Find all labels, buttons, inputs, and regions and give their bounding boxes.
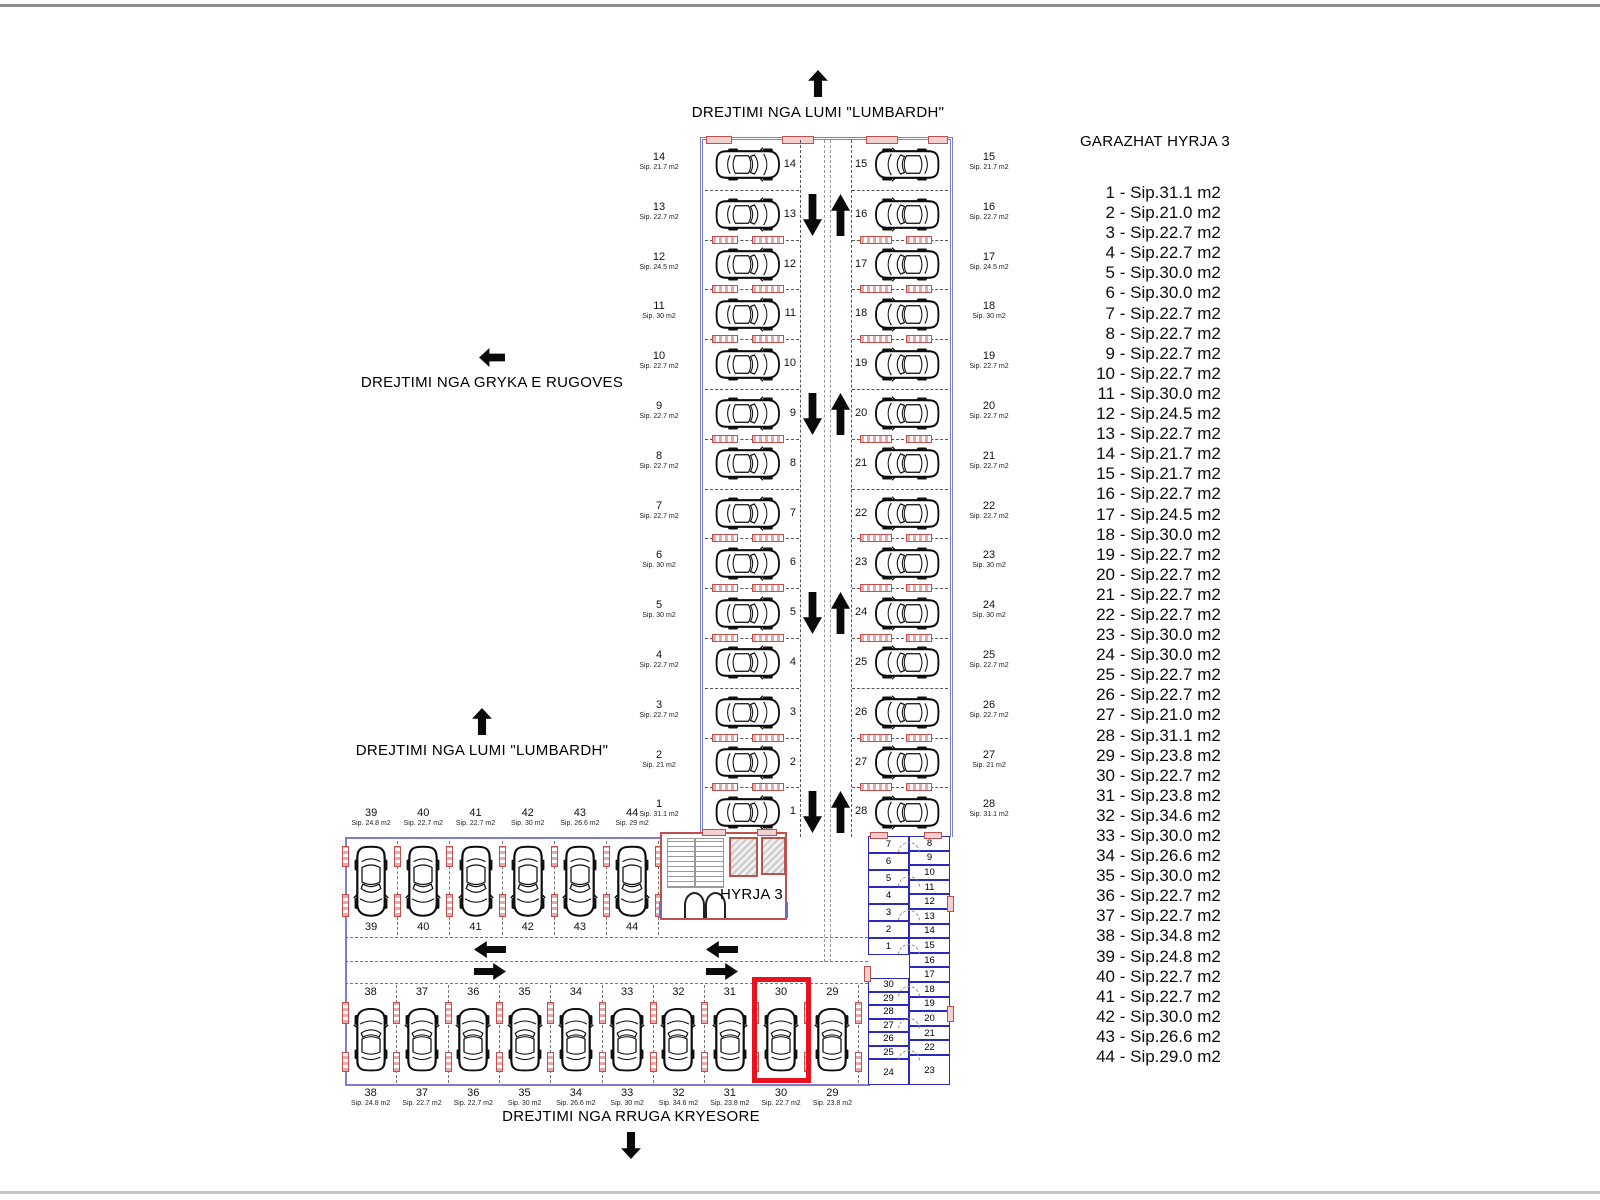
stall-number-23: 23	[855, 556, 877, 570]
legend-item-area: - Sip.34.8 m2	[1115, 926, 1221, 946]
stall-number-14: 14	[774, 158, 796, 172]
legend-item-number: 17	[1083, 505, 1115, 525]
garage-door-marker	[599, 1002, 606, 1024]
legend-item-number: 43	[1083, 1027, 1115, 1047]
stall-number-42: 42	[513, 921, 543, 935]
garage-door-marker	[860, 534, 892, 542]
legend-item-area: - Sip.30.0 m2	[1115, 625, 1221, 645]
car-icon	[353, 1006, 389, 1072]
stall-label-13: 13Sip. 22.7 m2	[619, 202, 699, 222]
legend-item-36: 36 - Sip.22.7 m2	[1083, 886, 1221, 906]
garage-door-marker	[445, 1002, 452, 1024]
garage-door-marker	[342, 1002, 349, 1024]
legend-item-number: 16	[1083, 484, 1115, 504]
legend-item-number: 34	[1083, 846, 1115, 866]
lane-arrow-down-icon	[803, 194, 822, 236]
stall-divider	[852, 688, 948, 689]
car-icon	[715, 147, 782, 182]
stall-label-29-number: 29	[801, 1088, 863, 1099]
stall-label-3-area: Sip. 22.7 m2	[619, 711, 699, 720]
garage-door-marker	[712, 335, 738, 343]
legend-item-number: 3	[1083, 223, 1115, 243]
stall-label-14-number: 14	[619, 152, 699, 163]
legend-item-15: 15 - Sip.21.7 m2	[1083, 464, 1221, 484]
car-icon	[873, 446, 940, 481]
car-icon	[455, 1006, 491, 1072]
stall-number-6: 6	[774, 556, 796, 570]
stall-label-5-number: 5	[619, 600, 699, 611]
stall-number-10: 10	[774, 357, 796, 371]
stall-label-4: 4Sip. 22.7 m2	[619, 650, 699, 670]
stall-number-16: 16	[855, 208, 877, 222]
legend-item-area: - Sip.21.7 m2	[1115, 464, 1221, 484]
legend-item-area: - Sip.22.7 m2	[1115, 545, 1221, 565]
legend-item-number: 9	[1083, 344, 1115, 364]
garage-door-marker	[603, 894, 610, 917]
stall-label-44-number: 44	[601, 808, 663, 819]
legend-item-number: 21	[1083, 585, 1115, 605]
stall-label-28-area: Sip. 31.1 m2	[949, 810, 1029, 819]
garage-door-marker	[906, 584, 932, 592]
stall-divider	[705, 190, 799, 191]
car-icon	[507, 1006, 543, 1072]
legend-item-number: 39	[1083, 947, 1115, 967]
stall-number-32: 32	[663, 986, 693, 1000]
stall-number-17: 17	[855, 258, 877, 272]
legend-item-1: 1 - Sip.31.1 m2	[1083, 183, 1221, 203]
stall-label-12-area: Sip. 24.5 m2	[619, 263, 699, 272]
stall-label-22-number: 22	[949, 501, 1029, 512]
legend-item-number: 1	[1083, 183, 1115, 203]
legend-item-area: - Sip.24.8 m2	[1115, 947, 1221, 967]
legend-item-31: 31 - Sip.23.8 m2	[1083, 786, 1221, 806]
car-icon	[715, 446, 782, 481]
legend-item-area: - Sip.22.7 m2	[1115, 585, 1221, 605]
legend-items: 1 - Sip.31.1 m22 - Sip.21.0 m23 - Sip.22…	[1083, 183, 1221, 1067]
legend-item-44: 44 - Sip.29.0 m2	[1083, 1047, 1221, 1067]
stall-label-11-area: Sip. 30 m2	[619, 312, 699, 321]
legend-item-number: 32	[1083, 806, 1115, 826]
garage-door-marker	[603, 846, 610, 867]
car-icon	[353, 845, 389, 919]
garage-door-marker	[394, 894, 401, 917]
garage-door-marker	[712, 584, 738, 592]
direction-top-label: DREJTIMI NGA LUMI "LUMBARDH"	[692, 104, 944, 121]
lane-line	[345, 961, 868, 962]
legend-item-area: - Sip.23.8 m2	[1115, 746, 1221, 766]
stall-label-23-number: 23	[949, 550, 1029, 561]
legend-item-area: - Sip.22.7 m2	[1115, 364, 1221, 384]
stall-label-6: 6Sip. 30 m2	[619, 550, 699, 570]
legend-item-16: 16 - Sip.22.7 m2	[1083, 484, 1221, 504]
car-icon	[873, 147, 940, 182]
legend-item-14: 14 - Sip.21.7 m2	[1083, 444, 1221, 464]
car-icon	[614, 845, 650, 919]
stall-label-25-number: 25	[949, 650, 1029, 661]
garage-door-marker	[860, 335, 892, 343]
garage-door-marker	[446, 894, 453, 917]
stall-label-6-area: Sip. 30 m2	[619, 561, 699, 570]
stall-number-1: 1	[774, 805, 796, 819]
car-icon	[404, 1006, 440, 1072]
garage-door-marker	[752, 335, 784, 343]
stall-number-26: 26	[855, 706, 877, 720]
stall-label-17: 17Sip. 24.5 m2	[949, 252, 1029, 272]
legend-item-27: 27 - Sip.21.0 m2	[1083, 705, 1221, 725]
legend-item-25: 25 - Sip.22.7 m2	[1083, 665, 1221, 685]
entrance-label: HYRJA 3	[720, 886, 783, 903]
legend-item-area: - Sip.22.7 m2	[1115, 766, 1221, 786]
garage-door-marker	[906, 285, 932, 293]
legend-item-26: 26 - Sip.22.7 m2	[1083, 685, 1221, 705]
lane-arrow-right-icon	[706, 963, 738, 980]
car-icon	[715, 695, 782, 730]
legend-item-area: - Sip.22.7 m2	[1115, 344, 1221, 364]
legend-item-3: 3 - Sip.22.7 m2	[1083, 223, 1221, 243]
stall-number-22: 22	[855, 507, 877, 521]
stall-label-18: 18Sip. 30 m2	[949, 301, 1029, 321]
wall-door-segment	[864, 966, 871, 982]
legend-item-area: - Sip.31.1 m2	[1115, 726, 1221, 746]
legend-item-number: 26	[1083, 685, 1115, 705]
stall-number-40: 40	[408, 921, 438, 935]
stall-number-44: 44	[617, 921, 647, 935]
stall-number-8: 8	[774, 457, 796, 471]
stall-number-19: 19	[855, 357, 877, 371]
storage-grid: 7654321302928272625248910111213141516171…	[868, 836, 950, 1085]
legend-item-number: 22	[1083, 605, 1115, 625]
legend-item-number: 12	[1083, 404, 1115, 424]
garage-door-marker	[342, 1052, 349, 1072]
legend-item-number: 7	[1083, 304, 1115, 324]
lane-arrow-up-icon	[831, 592, 850, 634]
wall-door-segment	[870, 832, 888, 839]
elevator	[729, 837, 758, 877]
wall-accent	[659, 902, 662, 918]
legend-item-area: - Sip.21.7 m2	[1115, 444, 1221, 464]
stall-number-12: 12	[774, 258, 796, 272]
legend-item-18: 18 - Sip.30.0 m2	[1083, 525, 1221, 545]
garage-door-marker	[752, 534, 784, 542]
stall-label-8-number: 8	[619, 451, 699, 462]
stall-number-7: 7	[774, 507, 796, 521]
car-icon	[660, 1006, 696, 1072]
stall-number-38: 38	[356, 986, 386, 1000]
garage-door-marker	[906, 734, 932, 742]
car-icon	[715, 745, 782, 780]
stall-number-27: 27	[855, 756, 877, 770]
car-icon	[873, 247, 940, 282]
legend-item-area: - Sip.22.7 m2	[1115, 243, 1221, 263]
stall-label-12-number: 12	[619, 252, 699, 263]
legend-item-area: - Sip.21.0 m2	[1115, 203, 1221, 223]
stall-label-6-number: 6	[619, 550, 699, 561]
legend-item-9: 9 - Sip.22.7 m2	[1083, 344, 1221, 364]
lane-arrow-up-icon	[831, 194, 850, 236]
legend-item-area: - Sip.23.8 m2	[1115, 786, 1221, 806]
car-icon	[715, 645, 782, 680]
legend-title: GARAZHAT HYRJA 3	[1070, 133, 1240, 150]
stall-divider	[705, 389, 799, 390]
stall-label-44: 44Sip. 29 m2	[601, 808, 663, 828]
legend-item-39: 39 - Sip.24.8 m2	[1083, 947, 1221, 967]
legend-item-area: - Sip.24.5 m2	[1115, 404, 1221, 424]
stall-number-36: 36	[458, 986, 488, 1000]
car-icon	[873, 695, 940, 730]
storage-cell-28[interactable]: 28	[868, 1005, 909, 1019]
legend-item-42: 42 - Sip.30.0 m2	[1083, 1007, 1221, 1027]
stall-label-9-area: Sip. 22.7 m2	[619, 412, 699, 421]
stall-label-20: 20Sip. 22.7 m2	[949, 401, 1029, 421]
stall-label-22: 22Sip. 22.7 m2	[949, 501, 1029, 521]
legend-item-10: 10 - Sip.22.7 m2	[1083, 364, 1221, 384]
garage-door-marker	[342, 894, 349, 917]
stall-label-28-number: 28	[949, 799, 1029, 810]
stall-number-3: 3	[774, 706, 796, 720]
lane-center-line	[824, 140, 825, 962]
stall-label-8-area: Sip. 22.7 m2	[619, 462, 699, 471]
legend-item-number: 20	[1083, 565, 1115, 585]
garage-door-marker	[599, 1052, 606, 1072]
stall-label-28: 28Sip. 31.1 m2	[949, 799, 1029, 819]
arrow-down-icon	[620, 1132, 642, 1159]
garage-door-marker	[496, 1002, 503, 1024]
legend-item-24: 24 - Sip.30.0 m2	[1083, 645, 1221, 665]
lane-arrow-up-icon	[831, 791, 850, 833]
legend-item-number: 5	[1083, 263, 1115, 283]
legend-item-23: 23 - Sip.30.0 m2	[1083, 625, 1221, 645]
stall-label-25: 25Sip. 22.7 m2	[949, 650, 1029, 670]
stall-divider	[852, 489, 948, 490]
legend-item-area: - Sip.30.0 m2	[1115, 1007, 1221, 1027]
stall-label-21-area: Sip. 22.7 m2	[949, 462, 1029, 471]
legend-item-area: - Sip.29.0 m2	[1115, 1047, 1221, 1067]
wall-door-segment	[924, 832, 942, 839]
garage-door-marker	[547, 1002, 554, 1024]
stall-label-7-number: 7	[619, 501, 699, 512]
stall-number-9: 9	[774, 407, 796, 421]
stall-divider	[705, 688, 799, 689]
legend-item-number: 14	[1083, 444, 1115, 464]
legend-item-area: - Sip.22.7 m2	[1115, 424, 1221, 444]
stall-number-29: 29	[817, 986, 847, 1000]
stall-label-26-area: Sip. 22.7 m2	[949, 711, 1029, 720]
storage-cell-12[interactable]: 12	[909, 894, 950, 909]
garage-door-marker	[752, 734, 784, 742]
stall-number-33: 33	[612, 986, 642, 1000]
legend-item-number: 19	[1083, 545, 1115, 565]
car-icon	[609, 1006, 645, 1072]
legend-item-6: 6 - Sip.30.0 m2	[1083, 283, 1221, 303]
legend-item-number: 27	[1083, 705, 1115, 725]
legend-item-number: 42	[1083, 1007, 1115, 1027]
legend-item-number: 8	[1083, 324, 1115, 344]
stall-number-25: 25	[855, 656, 877, 670]
page-bottom-rule	[0, 1191, 1600, 1194]
legend-item-number: 25	[1083, 665, 1115, 685]
car-icon	[715, 396, 782, 431]
garage-door-marker	[752, 285, 784, 293]
garage-door-marker	[650, 1002, 657, 1024]
garage-door-marker	[906, 634, 932, 642]
stall-label-15-number: 15	[949, 152, 1029, 163]
stall-label-29: 29Sip. 23.8 m2	[801, 1088, 863, 1108]
stall-label-4-area: Sip. 22.7 m2	[619, 661, 699, 670]
legend-item-area: - Sip.22.7 m2	[1115, 987, 1221, 1007]
lane-arrow-down-icon	[803, 393, 822, 435]
legend-item-19: 19 - Sip.22.7 m2	[1083, 545, 1221, 565]
legend-item-number: 28	[1083, 726, 1115, 746]
legend-item-area: - Sip.30.0 m2	[1115, 263, 1221, 283]
stall-label-10-area: Sip. 22.7 m2	[619, 362, 699, 371]
legend-item-34: 34 - Sip.26.6 m2	[1083, 846, 1221, 866]
lane-arrow-up-icon	[831, 393, 850, 435]
legend-item-17: 17 - Sip.24.5 m2	[1083, 505, 1221, 525]
garage-door-marker	[752, 435, 784, 443]
stall-label-5: 5Sip. 30 m2	[619, 600, 699, 620]
car-icon	[873, 496, 940, 531]
legend-item-area: - Sip.34.6 m2	[1115, 806, 1221, 826]
stall-label-3: 3Sip. 22.7 m2	[619, 700, 699, 720]
stall-label-2-area: Sip. 21 m2	[619, 761, 699, 770]
stall-number-2: 2	[774, 756, 796, 770]
legend-item-number: 4	[1083, 243, 1115, 263]
legend-item-number: 36	[1083, 886, 1115, 906]
legend-item-area: - Sip.30.0 m2	[1115, 826, 1221, 846]
legend-item-area: - Sip.22.7 m2	[1115, 565, 1221, 585]
stall-number-21: 21	[855, 457, 877, 471]
legend-item-number: 13	[1083, 424, 1115, 444]
garage-door-marker	[906, 236, 932, 244]
garage-door-marker	[906, 335, 932, 343]
lane-arrow-down-icon	[803, 791, 822, 833]
garage-door-marker	[551, 846, 558, 867]
lane-edge-line	[800, 140, 801, 837]
stall-divider	[852, 190, 948, 191]
car-icon	[458, 845, 494, 919]
garage-door-marker	[906, 435, 932, 443]
legend-item-number: 30	[1083, 766, 1115, 786]
stall-label-2-number: 2	[619, 750, 699, 761]
legend-item-area: - Sip.21.0 m2	[1115, 705, 1221, 725]
stall-label-18-area: Sip. 30 m2	[949, 312, 1029, 321]
legend-item-43: 43 - Sip.26.6 m2	[1083, 1027, 1221, 1047]
stall-label-19-area: Sip. 22.7 m2	[949, 362, 1029, 371]
garage-door-marker	[551, 894, 558, 917]
stall-label-11-number: 11	[619, 301, 699, 312]
storage-cell-17[interactable]: 17	[909, 967, 950, 982]
legend-item-number: 2	[1083, 203, 1115, 223]
legend-item-area: - Sip.22.7 m2	[1115, 484, 1221, 504]
garage-door-marker	[394, 846, 401, 867]
stall-label-20-area: Sip. 22.7 m2	[949, 412, 1029, 421]
legend-item-11: 11 - Sip.30.0 m2	[1083, 384, 1221, 404]
legend-item-38: 38 - Sip.34.8 m2	[1083, 926, 1221, 946]
garage-door-marker	[860, 734, 892, 742]
stall-label-25-area: Sip. 22.7 m2	[949, 661, 1029, 670]
car-icon	[873, 197, 940, 232]
stall-number-24: 24	[855, 606, 877, 620]
arrow-left-icon	[478, 348, 506, 367]
entrance-door-arc	[684, 892, 705, 918]
legend-item-area: - Sip.26.6 m2	[1115, 1027, 1221, 1047]
garage-door-marker	[496, 1052, 503, 1072]
garage-door-marker	[860, 584, 892, 592]
stall-label-16-area: Sip. 22.7 m2	[949, 213, 1029, 222]
garage-door-marker	[393, 1002, 400, 1024]
stall-label-15-area: Sip. 21.7 m2	[949, 163, 1029, 172]
stall-label-17-area: Sip. 24.5 m2	[949, 263, 1029, 272]
stall-number-5: 5	[774, 606, 796, 620]
car-icon	[715, 197, 782, 232]
direction-top: DREJTIMI NGA LUMI "LUMBARDH"	[638, 70, 998, 121]
stall-label-24-number: 24	[949, 600, 1029, 611]
legend-item-22: 22 - Sip.22.7 m2	[1083, 605, 1221, 625]
direction-mid: DREJTIMI NGA LUMI "LUMBARDH"	[332, 708, 632, 759]
stall-label-16-number: 16	[949, 202, 1029, 213]
garage-door-marker	[445, 1052, 452, 1072]
stall-label-11: 11Sip. 30 m2	[619, 301, 699, 321]
stall-label-29-area: Sip. 23.8 m2	[801, 1099, 863, 1108]
garage-door-marker	[860, 285, 892, 293]
legend-item-area: - Sip.30.0 m2	[1115, 645, 1221, 665]
stall-label-2: 2Sip. 21 m2	[619, 750, 699, 770]
legend-item-number: 10	[1083, 364, 1115, 384]
wall-door-segment	[947, 1006, 954, 1022]
garage-door-marker	[701, 1002, 708, 1024]
legend-item-32: 32 - Sip.34.6 m2	[1083, 806, 1221, 826]
stall-label-24-area: Sip. 30 m2	[949, 611, 1029, 620]
stall-label-27-number: 27	[949, 750, 1029, 761]
garage-door-marker	[650, 1052, 657, 1072]
legend-item-5: 5 - Sip.30.0 m2	[1083, 263, 1221, 283]
stall-number-13: 13	[774, 208, 796, 222]
car-icon	[510, 845, 546, 919]
lane-arrow-left-icon	[706, 941, 738, 958]
stall-label-15: 15Sip. 21.7 m2	[949, 152, 1029, 172]
legend-item-area: - Sip.22.7 m2	[1115, 605, 1221, 625]
selected-stall-highlight	[752, 977, 810, 1083]
legend-item-4: 4 - Sip.22.7 m2	[1083, 243, 1221, 263]
legend-item-number: 24	[1083, 645, 1115, 665]
legend-item-area: - Sip.22.7 m2	[1115, 886, 1221, 906]
car-icon	[715, 546, 782, 581]
stall-label-23: 23Sip. 30 m2	[949, 550, 1029, 570]
legend-item-number: 31	[1083, 786, 1115, 806]
stall-label-19-number: 19	[949, 351, 1029, 362]
stall-label-17-number: 17	[949, 252, 1029, 263]
stall-label-3-number: 3	[619, 700, 699, 711]
legend-item-37: 37 - Sip.22.7 m2	[1083, 906, 1221, 926]
direction-left: DREJTIMI NGA GRYKA E RUGOVES	[342, 348, 642, 391]
car-icon	[715, 297, 782, 332]
lane-arrow-down-icon	[803, 592, 822, 634]
legend-item-number: 33	[1083, 826, 1115, 846]
legend-item-number: 40	[1083, 967, 1115, 987]
garage-door-marker	[752, 584, 784, 592]
stall-label-10-number: 10	[619, 351, 699, 362]
stall-number-39: 39	[356, 921, 386, 935]
legend-item-30: 30 - Sip.22.7 m2	[1083, 766, 1221, 786]
direction-left-label: DREJTIMI NGA GRYKA E RUGOVES	[361, 374, 623, 391]
stall-label-12: 12Sip. 24.5 m2	[619, 252, 699, 272]
legend-item-33: 33 - Sip.30.0 m2	[1083, 826, 1221, 846]
stall-label-4-number: 4	[619, 650, 699, 661]
legend-item-20: 20 - Sip.22.7 m2	[1083, 565, 1221, 585]
legend-item-number: 37	[1083, 906, 1115, 926]
legend-item-area: - Sip.24.5 m2	[1115, 505, 1221, 525]
stall-label-27: 27Sip. 21 m2	[949, 750, 1029, 770]
